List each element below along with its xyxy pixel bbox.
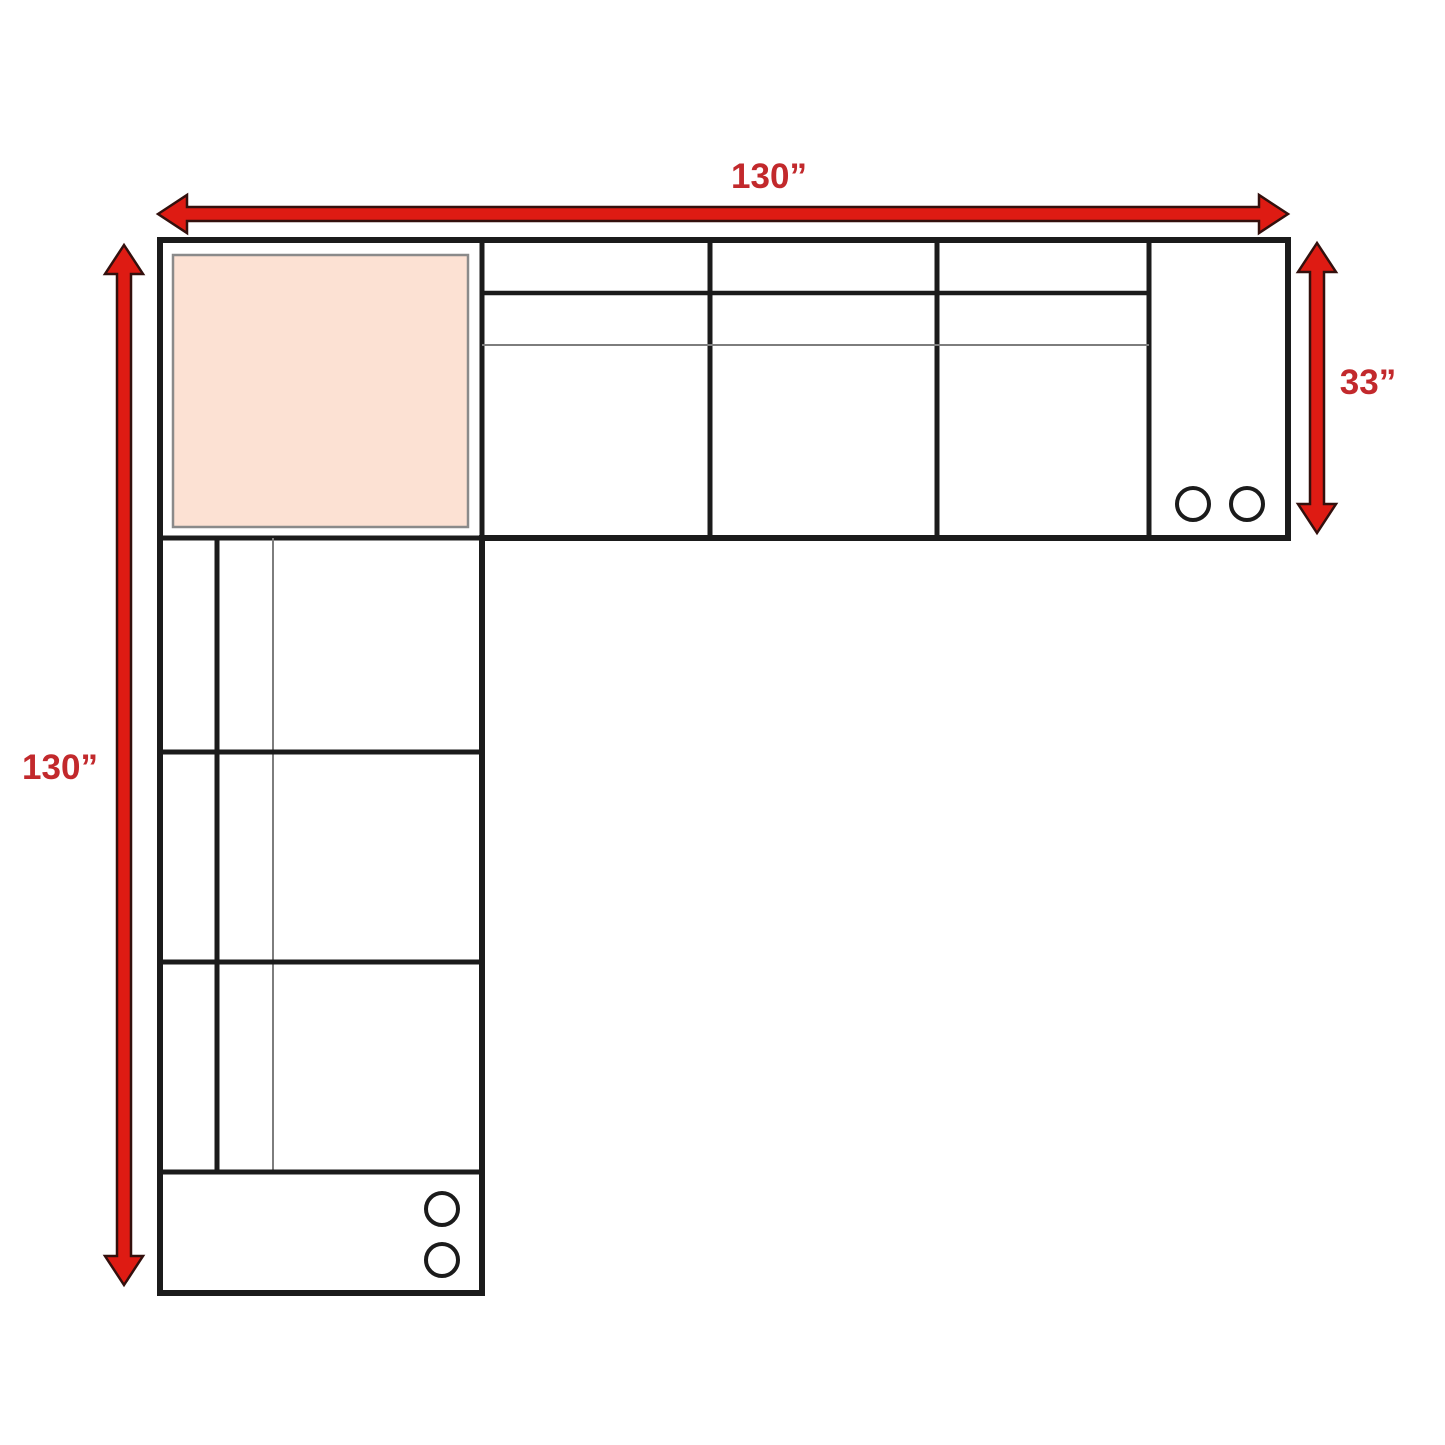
cup-holder-circle-console-bottom (426, 1244, 458, 1276)
cup-holder-circle-console-top (426, 1193, 458, 1225)
cup-holder-circle-end-left (1177, 488, 1209, 520)
top-width-label: 130” (731, 157, 807, 196)
right-depth-label: 33” (1340, 363, 1396, 402)
corner-seat-cushion (173, 255, 468, 527)
cup-holder-circle-end-right (1231, 488, 1263, 520)
left-height-label: 130” (22, 748, 98, 787)
top-width-arrow (158, 195, 1288, 233)
left-height-arrow (105, 245, 143, 1285)
sectional-dimension-diagram: 130” 130” 33” (0, 0, 1445, 1445)
right-depth-arrow (1298, 243, 1336, 533)
sectional-diagram-svg: 130” 130” 33” (0, 0, 1445, 1445)
